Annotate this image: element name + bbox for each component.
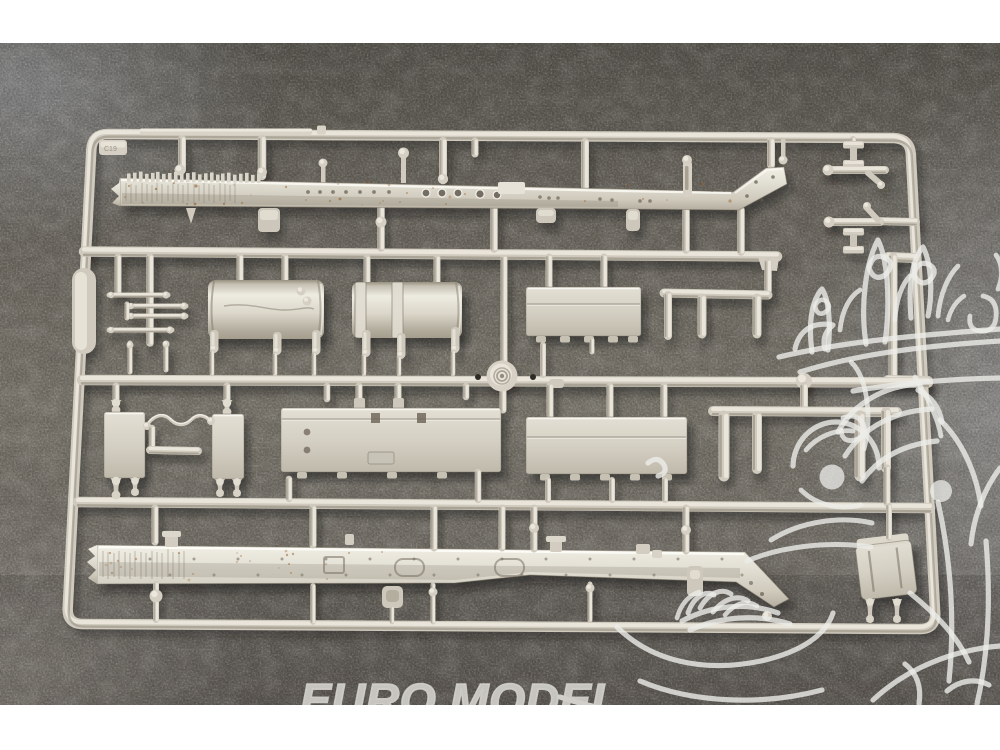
svg-text:C19: C19 bbox=[104, 146, 117, 153]
